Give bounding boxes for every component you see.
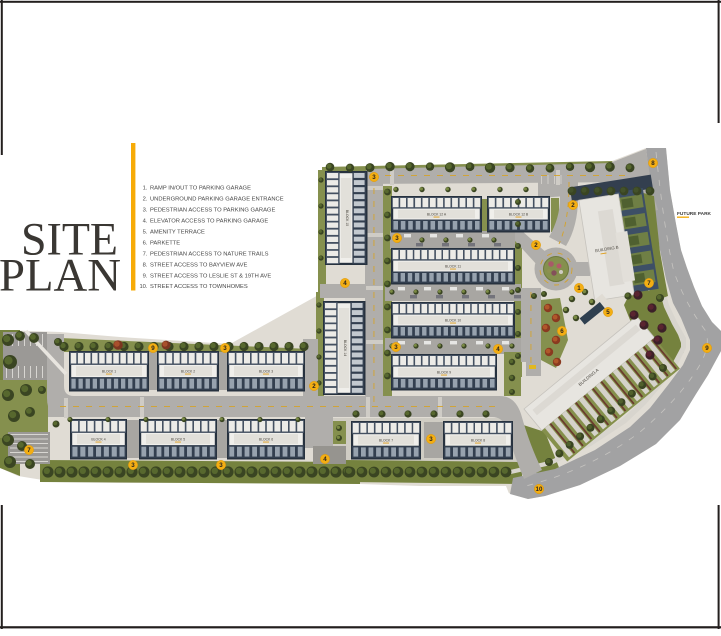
svg-text:1.: 1. [143, 186, 148, 192]
svg-text:BLOCK 2: BLOCK 2 [181, 369, 195, 373]
svg-text:BLOCK 12 A: BLOCK 12 A [427, 212, 447, 216]
svg-text:PEDESTRIAN ACCESS TO NATURE TR: PEDESTRIAN ACCESS TO NATURE TRAILS [150, 251, 269, 257]
svg-text:BLOCK 15: BLOCK 15 [345, 210, 349, 226]
svg-text:1: 1 [577, 285, 581, 292]
svg-text:10: 10 [536, 486, 543, 493]
svg-text:2: 2 [534, 242, 538, 249]
svg-text:9.: 9. [143, 273, 148, 279]
svg-text:BLOCK 4: BLOCK 4 [91, 437, 105, 441]
svg-text:9: 9 [705, 345, 709, 352]
svg-text:STREET ACCESS TO BAYVIEW AVE: STREET ACCESS TO BAYVIEW AVE [150, 262, 248, 268]
svg-text:5: 5 [606, 309, 610, 316]
svg-text:3: 3 [395, 235, 399, 242]
svg-text:BLOCK 9: BLOCK 9 [437, 370, 451, 374]
svg-text:BLOCK 14: BLOCK 14 [343, 340, 347, 356]
svg-text:BLOCK 7: BLOCK 7 [379, 438, 393, 442]
svg-text:4.: 4. [143, 218, 148, 224]
svg-text:BLOCK 11: BLOCK 11 [445, 264, 461, 268]
svg-text:5.: 5. [143, 229, 148, 235]
svg-text:BLOCK 12 B: BLOCK 12 B [509, 212, 529, 216]
svg-text:BLOCK 3: BLOCK 3 [259, 369, 273, 373]
svg-text:4: 4 [343, 280, 347, 287]
svg-text:PARKETTE: PARKETTE [150, 240, 180, 246]
svg-text:BLOCK 1: BLOCK 1 [102, 369, 116, 373]
svg-text:3.: 3. [143, 207, 148, 213]
svg-text:10.: 10. [139, 284, 147, 290]
svg-text:4: 4 [496, 346, 500, 353]
svg-text:BLOCK 8: BLOCK 8 [471, 438, 485, 442]
svg-text:7.: 7. [143, 251, 148, 257]
svg-text:3: 3 [219, 462, 223, 469]
svg-text:3: 3 [131, 462, 135, 469]
svg-text:9: 9 [151, 345, 155, 352]
svg-text:BLOCK 6: BLOCK 6 [259, 437, 273, 441]
svg-text:BLOCK 10: BLOCK 10 [445, 318, 461, 322]
svg-text:8: 8 [651, 160, 655, 167]
svg-text:2: 2 [571, 202, 575, 209]
svg-text:3: 3 [429, 436, 433, 443]
svg-text:STREET ACCESS TO LESLIE ST & 1: STREET ACCESS TO LESLIE ST & 19TH AVE [150, 273, 271, 279]
svg-text:3: 3 [223, 345, 227, 352]
svg-text:3: 3 [394, 344, 398, 351]
svg-text:2: 2 [312, 383, 316, 390]
svg-text:4: 4 [323, 456, 327, 463]
svg-text:7: 7 [27, 447, 31, 454]
svg-text:3: 3 [372, 174, 376, 181]
svg-text:FUTURE PARK: FUTURE PARK [677, 211, 712, 217]
svg-text:8.: 8. [143, 262, 148, 268]
svg-text:RAMP IN/OUT TO PARKING GARAGE: RAMP IN/OUT TO PARKING GARAGE [150, 186, 251, 192]
svg-text:AMENITY TERRACE: AMENITY TERRACE [150, 229, 205, 235]
svg-text:UNDERGROUND PARKING GARAGE ENT: UNDERGROUND PARKING GARAGE ENTRANCE [150, 197, 284, 203]
svg-text:6: 6 [560, 328, 564, 335]
svg-text:2.: 2. [143, 197, 148, 203]
svg-text:7: 7 [647, 280, 651, 287]
svg-text:BLOCK 5: BLOCK 5 [171, 437, 185, 441]
svg-text:6.: 6. [143, 240, 148, 246]
svg-text:STREET ACCESS TO TOWNHOMES: STREET ACCESS TO TOWNHOMES [150, 284, 248, 290]
svg-text:PEDESTRIAN ACCESS TO PARKING G: PEDESTRIAN ACCESS TO PARKING GARAGE [150, 207, 275, 213]
svg-text:ELEVATOR ACCESS TO PARKING GAR: ELEVATOR ACCESS TO PARKING GARAGE [150, 218, 268, 224]
svg-text:PLAN: PLAN [0, 250, 121, 302]
